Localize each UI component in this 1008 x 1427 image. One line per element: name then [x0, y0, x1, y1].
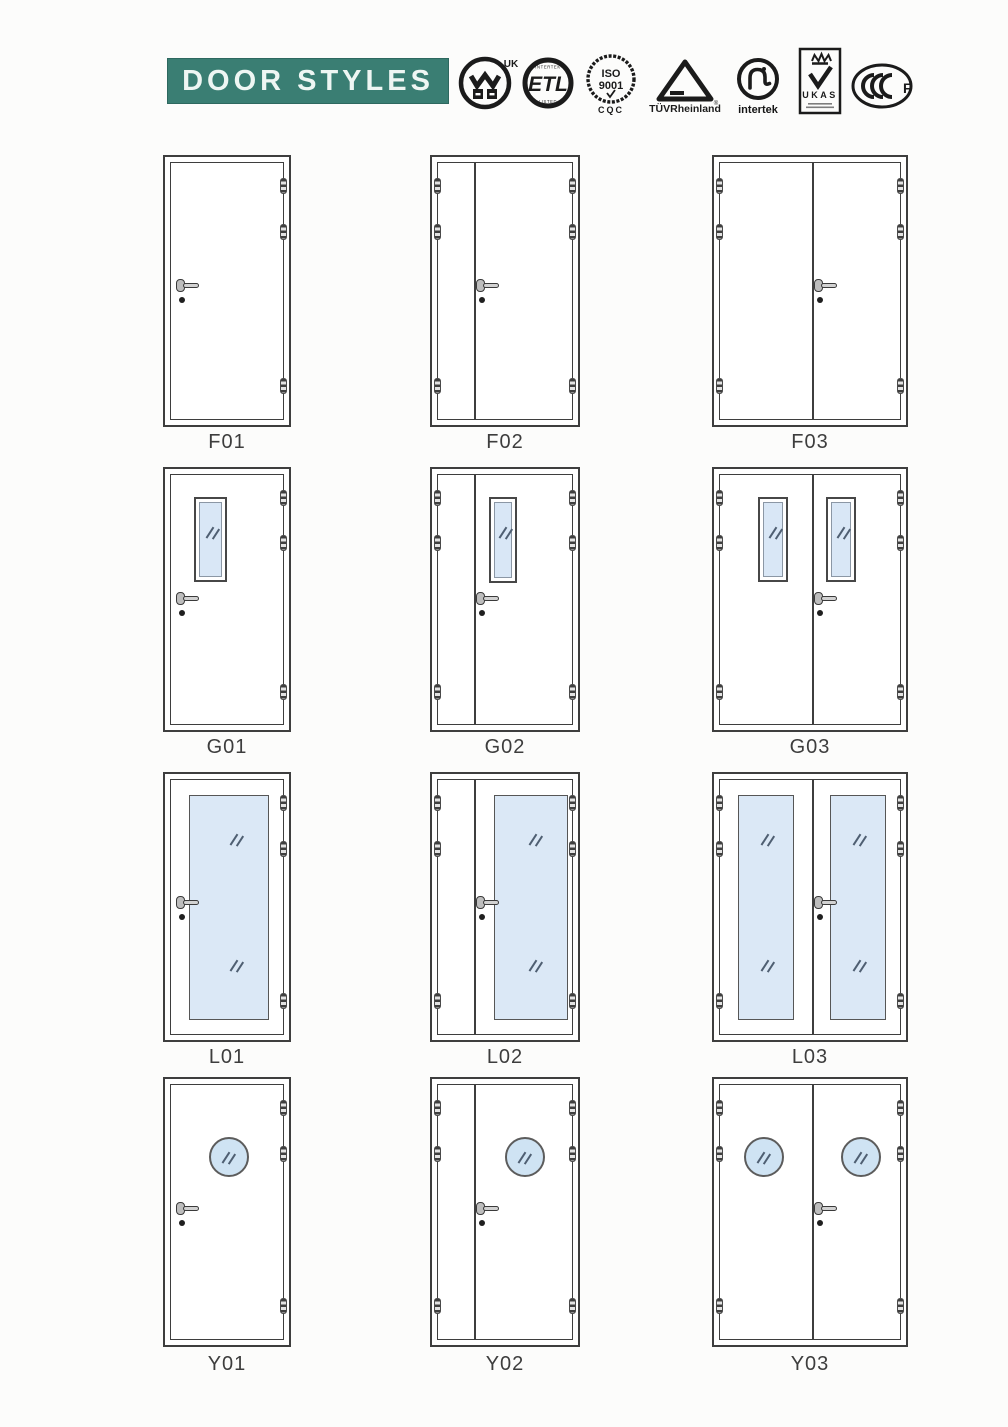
- vision-panel-glass: [831, 502, 851, 577]
- door-hinge: [897, 378, 904, 394]
- door-label: L02: [430, 1046, 580, 1069]
- door-handle: [476, 279, 502, 292]
- handle-lever: [183, 283, 199, 289]
- door-F03: F03: [712, 155, 908, 457]
- door-hinge: [569, 795, 576, 811]
- vision-panel-glass: [199, 502, 222, 577]
- door-hinge: [569, 224, 576, 240]
- door-handle: [176, 1202, 202, 1215]
- warrington-uk-fire-cert-logo: UK: [456, 50, 520, 114]
- door-hinge: [897, 224, 904, 240]
- door-frame: [163, 155, 291, 427]
- keyhole: [479, 297, 485, 303]
- vision-panel-glass: [763, 502, 783, 577]
- door-hinge: [280, 178, 287, 194]
- iso-9001-cqc-logo: ISO 9001 CQC: [582, 52, 640, 116]
- door-L02: L02: [430, 772, 580, 1072]
- door-F01: F01: [163, 155, 291, 457]
- keyhole: [179, 914, 185, 920]
- door-leaf: [437, 162, 573, 420]
- door-hinge: [569, 841, 576, 857]
- handle-lever: [821, 900, 837, 906]
- door-hinge: [434, 535, 441, 551]
- door-hinge: [434, 993, 441, 1009]
- door-hinge: [897, 684, 904, 700]
- door-frame: [712, 1077, 908, 1347]
- door-hinge: [716, 684, 723, 700]
- door-handle: [176, 896, 202, 909]
- door-L03: L03: [712, 772, 908, 1072]
- keyhole: [817, 914, 823, 920]
- door-hinge: [716, 1100, 723, 1116]
- door-hinge: [569, 993, 576, 1009]
- porthole-window: [841, 1137, 881, 1177]
- door-hinge: [280, 1146, 287, 1162]
- door-Y02: Y02: [430, 1077, 580, 1377]
- door-frame: [430, 467, 580, 732]
- cqc-label: CQC: [598, 105, 624, 115]
- keyhole: [179, 1220, 185, 1226]
- door-frame: [430, 155, 580, 427]
- door-hinge: [716, 224, 723, 240]
- door-hinge: [569, 378, 576, 394]
- handle-lever: [483, 283, 499, 289]
- door-handle: [476, 1202, 502, 1215]
- door-hinge: [897, 178, 904, 194]
- checkmark-icon: [810, 67, 831, 86]
- door-hinge: [434, 795, 441, 811]
- iso-line2: 9001: [599, 80, 623, 92]
- door-hinge: [280, 841, 287, 857]
- door-hinge: [897, 535, 904, 551]
- door-G01: G01: [163, 467, 291, 763]
- door-hinge: [280, 378, 287, 394]
- vision-panel-window: [826, 497, 856, 582]
- door-hinge: [716, 535, 723, 551]
- tuv-label: TÜVRheinland: [649, 102, 721, 114]
- door-hinge: [280, 1100, 287, 1116]
- ukas-label: UKAS: [802, 90, 838, 100]
- door-frame: [163, 467, 291, 732]
- door-handle: [814, 896, 840, 909]
- in-glyph: [750, 70, 770, 89]
- door-handle: [476, 896, 502, 909]
- door-hinge: [897, 490, 904, 506]
- uk-label: UK: [504, 59, 519, 70]
- door-hinge: [897, 841, 904, 857]
- door-hinge: [569, 1100, 576, 1116]
- keyhole: [479, 914, 485, 920]
- door-hinge: [434, 1100, 441, 1116]
- door-hinge: [434, 178, 441, 194]
- door-hinge: [716, 1146, 723, 1162]
- door-label: F03: [712, 431, 908, 454]
- door-hinge: [569, 1146, 576, 1162]
- handle-lever: [483, 1206, 499, 1212]
- ukas-quality-logo: UKAS: [796, 46, 844, 118]
- keyhole: [817, 1220, 823, 1226]
- glass-reflection: [835, 525, 853, 541]
- glass-reflection: [759, 832, 777, 848]
- glass-reflection: [851, 958, 869, 974]
- door-hinge: [897, 1146, 904, 1162]
- door-frame: [712, 467, 908, 732]
- glass-panel: [738, 795, 794, 1020]
- door-label: L01: [163, 1046, 291, 1069]
- door-frame: [163, 772, 291, 1042]
- door-leaf: [719, 474, 901, 725]
- door-label: Y01: [163, 1353, 291, 1376]
- keyhole: [479, 1220, 485, 1226]
- door-hinge: [716, 841, 723, 857]
- door-hinge: [280, 224, 287, 240]
- f-letter: F: [903, 80, 912, 96]
- door-styles-catalog-page: DOOR STYLES UK INTERTEK ETL LISTED ISO 9…: [0, 0, 1008, 1427]
- keyhole: [179, 610, 185, 616]
- glass-reflection: [228, 958, 246, 974]
- glass-reflection: [527, 958, 545, 974]
- keyhole: [817, 610, 823, 616]
- page-title: DOOR STYLES: [182, 65, 434, 98]
- door-leaf: [719, 1084, 901, 1340]
- keyhole: [179, 297, 185, 303]
- handle-lever: [483, 900, 499, 906]
- door-Y01: Y01: [163, 1077, 291, 1377]
- etl-arc-bottom: LISTED: [539, 99, 557, 104]
- door-hinge: [897, 795, 904, 811]
- door-hinge: [897, 1298, 904, 1314]
- door-leaf: [719, 162, 901, 420]
- door-hinge: [434, 1298, 441, 1314]
- vision-panel-window: [194, 497, 227, 582]
- door-hinge: [569, 684, 576, 700]
- door-hinge: [897, 1100, 904, 1116]
- glass-panel: [494, 795, 568, 1020]
- door-hinge: [434, 490, 441, 506]
- door-G02: G02: [430, 467, 580, 763]
- door-hinge: [569, 1298, 576, 1314]
- w-glyph: [471, 75, 499, 86]
- door-handle: [814, 1202, 840, 1215]
- vision-panel-window: [758, 497, 788, 582]
- door-frame: [712, 155, 908, 427]
- porthole-window: [744, 1137, 784, 1177]
- door-handle: [176, 279, 202, 292]
- door-handle: [814, 592, 840, 605]
- door-hinge: [280, 490, 287, 506]
- keyhole: [817, 297, 823, 303]
- door-label: Y03: [712, 1353, 908, 1376]
- door-hinge: [280, 795, 287, 811]
- glass-reflection: [220, 1150, 238, 1166]
- glass-reflection: [852, 1150, 870, 1166]
- handle-lever: [183, 596, 199, 602]
- glass-reflection: [755, 1150, 773, 1166]
- porthole-window: [209, 1137, 249, 1177]
- door-hinge: [716, 795, 723, 811]
- triangle-icon: [659, 62, 711, 99]
- door-frame: [430, 1077, 580, 1347]
- door-hinge: [569, 178, 576, 194]
- c-glyph: [881, 75, 892, 97]
- intertek-label: intertek: [738, 104, 779, 116]
- vision-panel-glass: [494, 502, 512, 578]
- handle-lever: [821, 596, 837, 602]
- door-hinge: [434, 684, 441, 700]
- door-hinge: [280, 993, 287, 1009]
- etl-main: ETL: [528, 73, 568, 96]
- handle-lever: [483, 596, 499, 602]
- door-L01: L01: [163, 772, 291, 1072]
- intertek-logo: intertek: [729, 54, 787, 116]
- glass-reflection: [228, 832, 246, 848]
- door-frame: [430, 772, 580, 1042]
- crown-icon: [812, 54, 831, 61]
- door-hinge: [280, 1298, 287, 1314]
- door-hinge: [280, 535, 287, 551]
- tuv-rheinland-logo: ® TÜVRheinland: [645, 56, 725, 114]
- door-hinge: [716, 178, 723, 194]
- door-label: G03: [712, 736, 908, 759]
- door-hinge: [897, 993, 904, 1009]
- vision-panel-window: [489, 497, 517, 583]
- glass-reflection: [851, 832, 869, 848]
- iso-line1: ISO: [602, 68, 621, 80]
- door-styles-banner: DOOR STYLES: [167, 58, 449, 104]
- door-hinge: [434, 224, 441, 240]
- door-frame: [712, 772, 908, 1042]
- glass-reflection: [767, 525, 785, 541]
- door-hinge: [434, 1146, 441, 1162]
- door-hinge: [569, 535, 576, 551]
- door-label: G02: [430, 736, 580, 759]
- door-handle: [814, 279, 840, 292]
- ccc-fire-cert-logo: F: [850, 62, 918, 110]
- door-hinge: [716, 1298, 723, 1314]
- porthole-window: [505, 1137, 545, 1177]
- door-label: Y02: [430, 1353, 580, 1376]
- door-handle: [176, 592, 202, 605]
- door-label: G01: [163, 736, 291, 759]
- handle-lever: [183, 900, 199, 906]
- door-hinge: [569, 490, 576, 506]
- door-F02: F02: [430, 155, 580, 457]
- door-hinge: [434, 378, 441, 394]
- glass-reflection: [497, 525, 515, 541]
- door-handle: [476, 592, 502, 605]
- door-frame: [163, 1077, 291, 1347]
- door-label: F01: [163, 431, 291, 454]
- glass-reflection: [204, 525, 222, 541]
- handle-lever: [821, 1206, 837, 1212]
- door-G03: G03: [712, 467, 908, 763]
- door-Y03: Y03: [712, 1077, 908, 1377]
- glass-reflection: [516, 1150, 534, 1166]
- door-hinge: [434, 841, 441, 857]
- door-leaf: [437, 1084, 573, 1340]
- glass-reflection: [759, 958, 777, 974]
- door-label: L03: [712, 1046, 908, 1069]
- handle-lever: [183, 1206, 199, 1212]
- etl-arc-top: INTERTEK: [535, 65, 560, 70]
- door-label: F02: [430, 431, 580, 454]
- etl-listed-logo: INTERTEK ETL LISTED: [520, 54, 576, 112]
- door-hinge: [716, 490, 723, 506]
- door-hinge: [716, 378, 723, 394]
- door-hinge: [716, 993, 723, 1009]
- glass-reflection: [527, 832, 545, 848]
- handle-lever: [821, 283, 837, 289]
- door-hinge: [280, 684, 287, 700]
- keyhole: [479, 610, 485, 616]
